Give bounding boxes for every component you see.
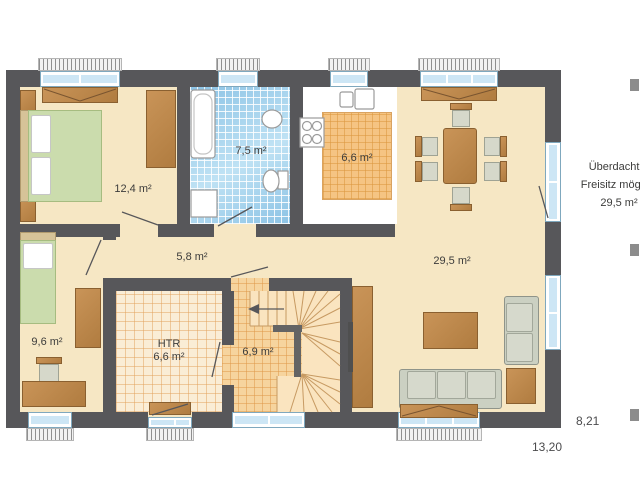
- stair-lower-flight: [277, 376, 340, 412]
- shutter-hatch: [396, 428, 482, 441]
- wall-segment: [103, 278, 116, 412]
- nightstand: [20, 90, 36, 112]
- pillow: [23, 243, 53, 269]
- wall-segment: [177, 87, 190, 224]
- shutter-hatch: [38, 58, 122, 71]
- side-note: Überdachter Freisitz möglich 29,5 m²: [576, 158, 640, 212]
- shutter-hatch: [216, 58, 260, 71]
- desk-chair-back: [36, 357, 62, 364]
- sideboard: [421, 87, 497, 101]
- wall-segment: [290, 87, 303, 224]
- sofa-cushion: [506, 333, 533, 362]
- wall-segment: [192, 412, 232, 428]
- stair-upper-flight: [250, 291, 340, 326]
- dining-chair-seat: [452, 110, 470, 127]
- wall-segment: [368, 70, 420, 87]
- wall-segment: [258, 70, 330, 87]
- window-stair: [232, 412, 305, 428]
- sideboard-under-window: [400, 404, 478, 418]
- window-child: [28, 412, 72, 428]
- side-note-line: 29,5 m²: [576, 194, 640, 212]
- wall-segment: [545, 350, 561, 428]
- dining-chair-seat: [422, 137, 438, 156]
- wardrobe: [75, 288, 101, 348]
- tv-lowboard: [352, 286, 373, 408]
- room-label-bath: 7,5 m²: [235, 145, 266, 157]
- utility-name: HTR: [158, 338, 181, 350]
- entrance-door-leaf: [149, 402, 191, 415]
- dimension-depth: 8,21: [576, 414, 599, 428]
- room-label-stair: 6,9 m²: [242, 346, 273, 358]
- room-label-utility: HTR 6,6 m²: [153, 338, 184, 364]
- side-note-line: Überdachter: [576, 158, 640, 176]
- floor-plan: 12,4 m² 7,5 m² 6,6 m² 29,5 m² 5,8 m² 9,6…: [0, 0, 640, 480]
- dresser-under-window: [42, 87, 118, 103]
- utility-area: 6,6 m²: [153, 351, 184, 363]
- wall-segment: [305, 412, 398, 428]
- entrance-mat-hatch: [146, 428, 194, 441]
- stair-winder-area: [302, 326, 340, 376]
- edge-marker: [630, 409, 639, 421]
- pillow: [31, 115, 51, 153]
- dining-chair-back: [450, 204, 472, 211]
- sofa-cushion: [506, 303, 533, 332]
- entrance-door-glass: [148, 417, 192, 428]
- dining-chair-seat: [422, 162, 438, 181]
- dining-chair-back: [500, 161, 507, 182]
- edge-marker: [630, 244, 639, 256]
- coffee-table: [423, 312, 478, 349]
- desk-chair-seat: [39, 364, 59, 382]
- wall-segment: [545, 222, 561, 275]
- wall-segment: [120, 70, 218, 87]
- dimension-width: 13,20: [532, 440, 562, 454]
- desk: [22, 381, 86, 407]
- window-dining: [420, 71, 498, 87]
- dining-chair-back: [500, 136, 507, 157]
- wall-segment: [103, 224, 116, 240]
- window-bedroom: [40, 71, 120, 87]
- wardrobe: [146, 90, 176, 168]
- wall-segment: [6, 70, 20, 428]
- shutter-hatch: [26, 428, 74, 441]
- wall-segment: [158, 224, 214, 237]
- wall-segment: [222, 385, 234, 412]
- shutter-hatch: [328, 58, 370, 71]
- pillow: [31, 157, 51, 195]
- dining-chair-back: [415, 136, 422, 157]
- sofa-cushion: [407, 371, 436, 399]
- wall-segment: [72, 412, 148, 428]
- sofa-cushion: [467, 371, 496, 399]
- room-label-living: 29,5 m²: [433, 255, 470, 267]
- dining-chair-back: [450, 103, 472, 110]
- dining-chair-seat: [484, 162, 500, 181]
- room-label-hall: 5,8 m²: [176, 251, 207, 263]
- window-living-right: [545, 275, 561, 350]
- dining-chair-seat: [452, 187, 470, 204]
- side-table: [506, 368, 536, 404]
- dining-chair-back: [415, 161, 422, 182]
- tv: [348, 322, 353, 372]
- wall-segment: [222, 291, 234, 345]
- shutter-hatch: [418, 58, 500, 71]
- wall-segment: [256, 224, 395, 237]
- terrace-door: [545, 142, 561, 222]
- dining-table: [443, 128, 477, 184]
- side-note-line: Freisitz möglich: [576, 176, 640, 194]
- dining-chair-seat: [484, 137, 500, 156]
- edge-marker: [630, 79, 639, 91]
- wall-segment: [545, 70, 561, 142]
- room-label-bedroom: 12,4 m²: [114, 183, 151, 195]
- window-kitchen: [330, 71, 368, 87]
- sofa-cushion: [437, 371, 466, 399]
- room-label-kitchen: 6,6 m²: [341, 152, 372, 164]
- wall-segment: [116, 278, 231, 291]
- window-bath: [218, 71, 258, 87]
- room-label-child: 9,6 m²: [31, 336, 62, 348]
